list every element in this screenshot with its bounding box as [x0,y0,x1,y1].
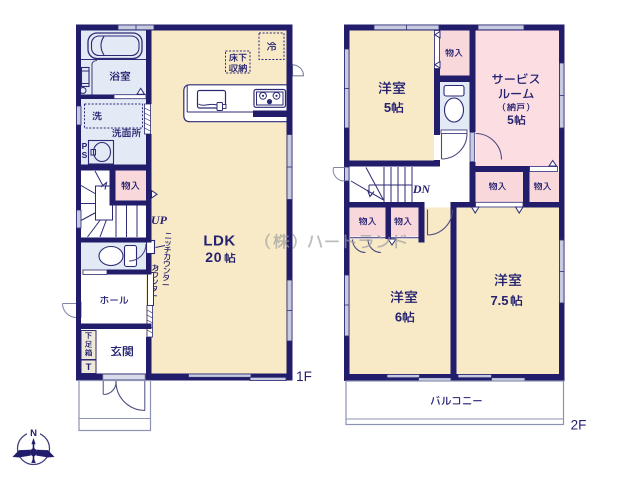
svg-text:5: 5 [507,113,514,127]
svg-text:T: T [86,362,92,373]
svg-text:2F: 2F [571,418,587,433]
svg-text:20: 20 [205,249,222,265]
svg-text:LDK: LDK [203,232,235,249]
svg-text:UP: UP [151,213,168,227]
svg-text:5: 5 [384,100,391,115]
svg-text:DN: DN [412,182,432,196]
svg-text:S: S [82,150,88,160]
svg-text:N: N [30,428,37,439]
svg-text:7.5: 7.5 [490,293,508,308]
svg-text:1F: 1F [296,369,312,384]
svg-text:6: 6 [395,310,402,325]
